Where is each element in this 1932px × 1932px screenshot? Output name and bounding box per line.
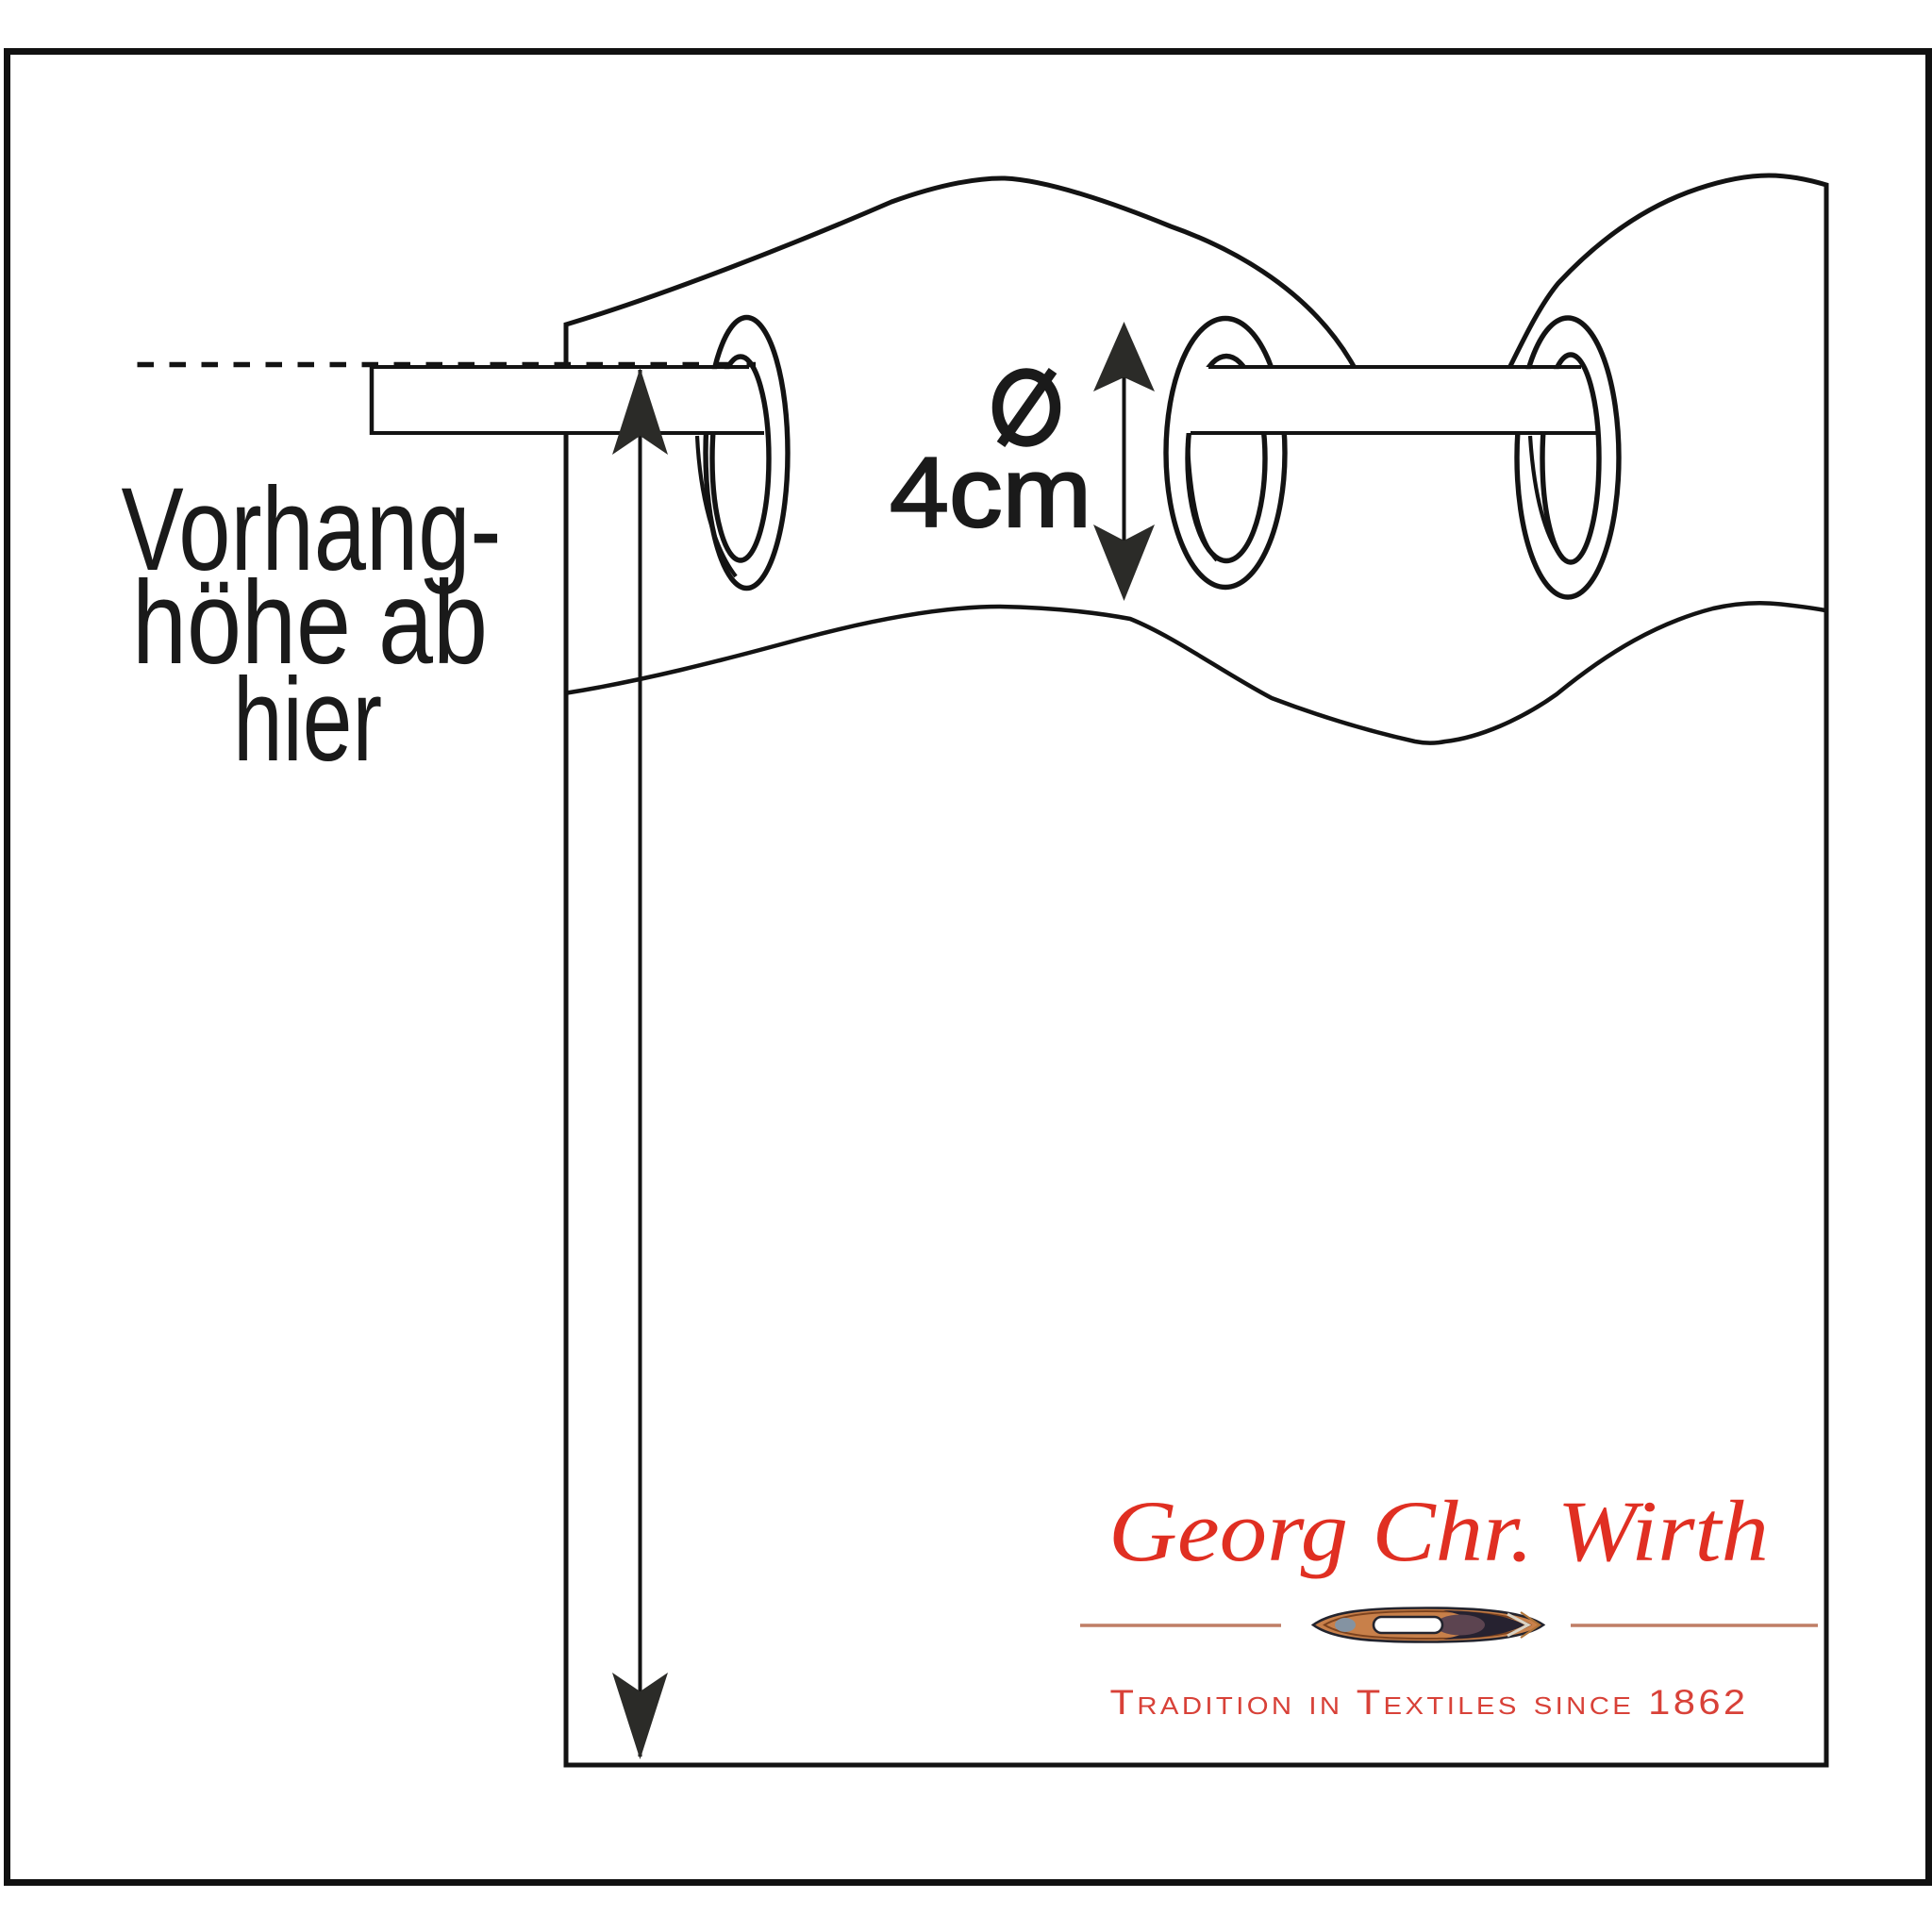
svg-text:hier: hier — [233, 655, 382, 786]
svg-text:Tradition in Textiles since 18: Tradition in Textiles since 1862 — [1110, 1683, 1749, 1722]
svg-text:4cm: 4cm — [890, 438, 1091, 548]
svg-text:Georg Chr. Wirth: Georg Chr. Wirth — [1108, 1483, 1769, 1579]
